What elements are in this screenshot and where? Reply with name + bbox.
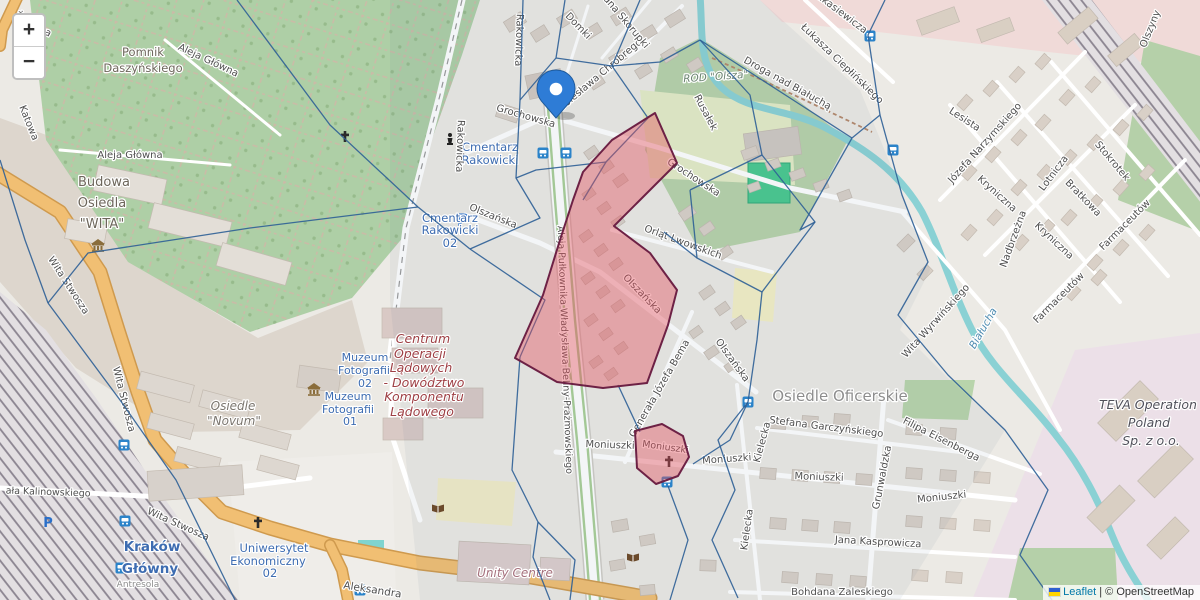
- map-label: 01: [343, 415, 357, 428]
- map-label: "Novum": [207, 414, 261, 428]
- map-label: Lądowego: [390, 404, 454, 419]
- map-canvas[interactable]: PP ŻelaznaKatowaAleja GłównaAleja Główna…: [0, 0, 1200, 600]
- bus-icon: [120, 516, 131, 527]
- zoom-control: + −: [12, 13, 46, 80]
- bus-icon: [119, 440, 130, 451]
- map-label: Komponentu: [384, 389, 464, 404]
- map-label: Farmaceutów: [1031, 270, 1087, 326]
- bus-icon: [561, 148, 572, 159]
- map-label: Muzeum: [342, 351, 389, 364]
- bus-icon: [538, 148, 549, 159]
- base-map: PP ŻelaznaKatowaAleja GłównaAleja Główna…: [0, 0, 1200, 600]
- map-label: Poland: [1128, 415, 1170, 430]
- osm-link[interactable]: © OpenStreetMap: [1105, 586, 1194, 598]
- map-label: Antresola: [117, 580, 160, 590]
- overlay-tint: [390, 0, 1005, 600]
- map-label: 02: [263, 566, 278, 580]
- ukraine-flag-icon: [1049, 588, 1060, 596]
- map-label: 02: [443, 236, 458, 250]
- map-label: Operacji: [394, 346, 447, 361]
- map-label: Moniuszki: [585, 439, 635, 452]
- map-label: Osiedla: [78, 196, 126, 211]
- map-label: Lądowych: [390, 360, 453, 375]
- zoom-in-button[interactable]: +: [14, 15, 44, 47]
- map-label: Bohdana Zaleskiego: [791, 587, 893, 598]
- map-label: Kraków: [124, 539, 181, 555]
- zoom-out-button[interactable]: −: [14, 47, 44, 78]
- map-label: Aleja Główna: [97, 149, 162, 161]
- parking-icon: P: [43, 516, 53, 531]
- svg-text:P: P: [43, 516, 53, 531]
- map-label: Daszyńskiego: [103, 61, 182, 75]
- map-label: Rakowicki: [422, 223, 479, 237]
- map-label: Centrum: [396, 331, 450, 346]
- map-label: Muzeum: [325, 390, 372, 403]
- map-label: Moniuszki: [794, 471, 844, 484]
- leaflet-link[interactable]: Leaflet: [1063, 586, 1096, 598]
- map-label: Osiedle: [211, 399, 256, 413]
- map-label: Główny: [122, 561, 178, 577]
- map-label: 02: [358, 377, 372, 390]
- map-label: Cmentarz: [462, 140, 518, 154]
- map-label: Fotografii: [338, 364, 390, 377]
- map-label: Pomnik: [122, 45, 164, 59]
- map-label: Uniwersytet: [240, 541, 309, 555]
- map-label: Sp. z o.o.: [1122, 433, 1180, 448]
- attribution-bar: Leaflet | © OpenStreetMap: [1043, 585, 1200, 600]
- map-label: "WITA": [80, 217, 124, 232]
- attribution-separator: |: [1099, 586, 1102, 598]
- map-label: Rakowicki: [462, 153, 519, 167]
- map-label: TEVA Operation: [1099, 397, 1197, 412]
- map-label: - Dowództwo: [384, 375, 465, 390]
- map-label: Rakowicka: [453, 120, 466, 173]
- map-label: Budowa: [78, 175, 130, 190]
- map-label: Osiedle Oficerskie: [772, 387, 908, 405]
